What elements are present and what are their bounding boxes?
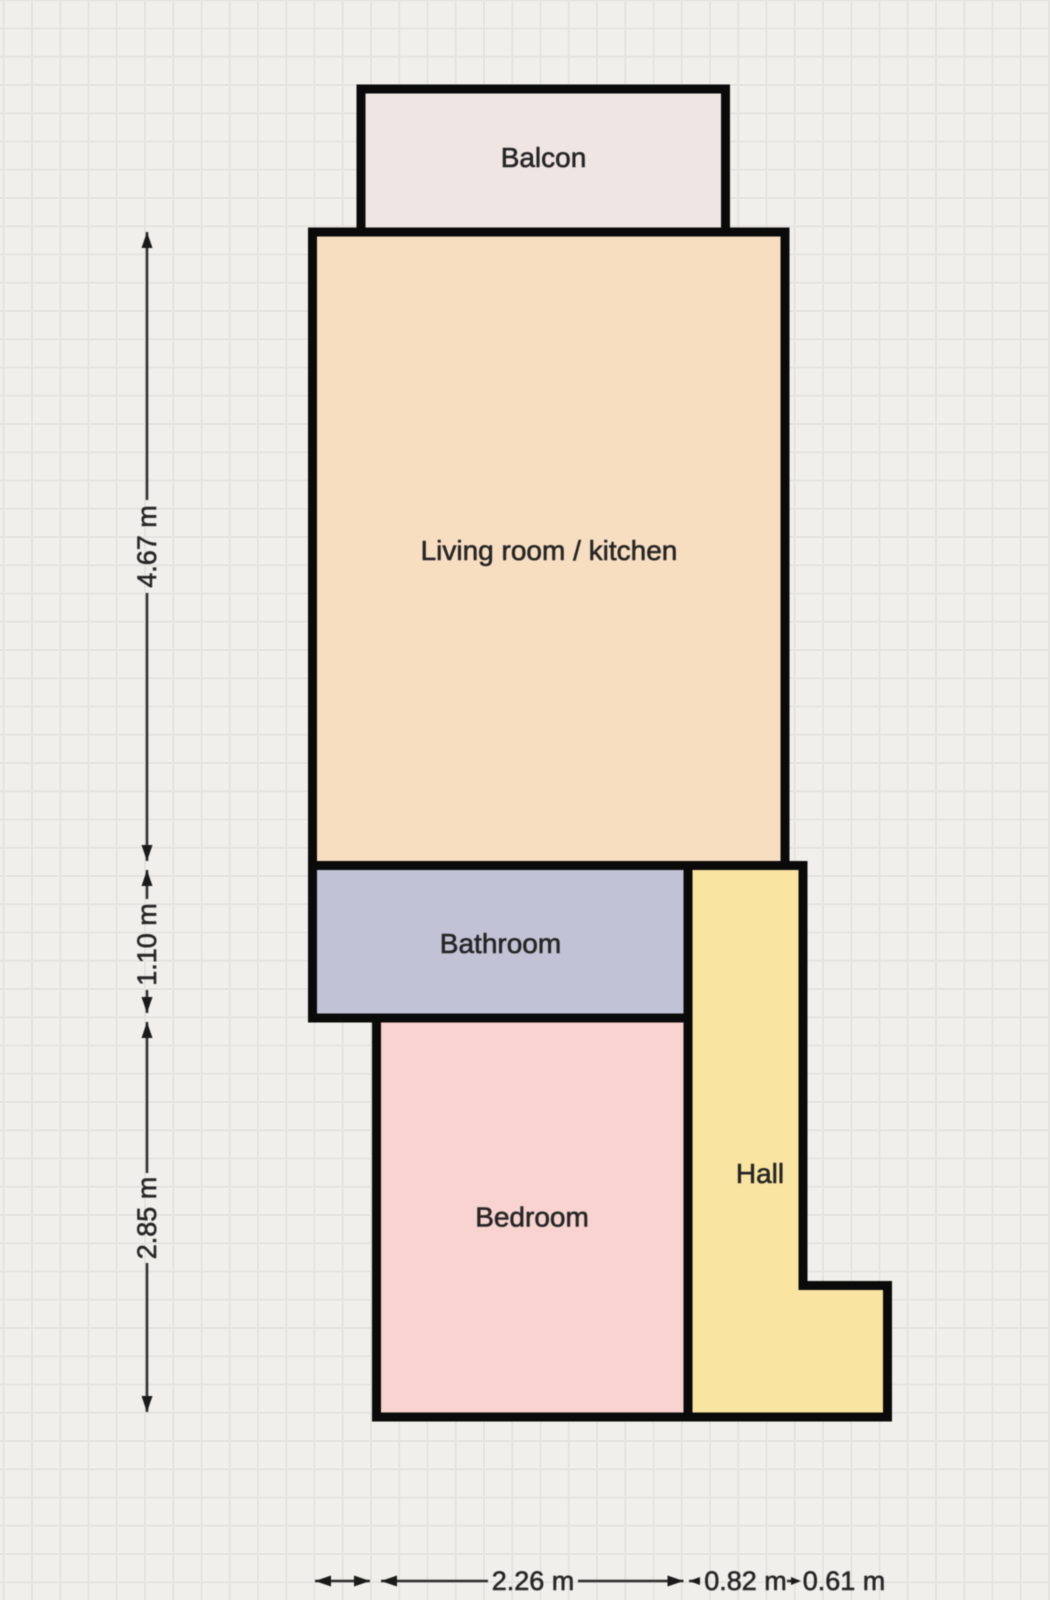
svg-text:0.61 m: 0.61 m bbox=[803, 1566, 886, 1596]
svg-text:1.10 m: 1.10 m bbox=[132, 903, 162, 986]
svg-text:4.67 m: 4.67 m bbox=[132, 505, 162, 588]
svg-text:2.85 m: 2.85 m bbox=[132, 1177, 162, 1260]
svg-text:Balcon: Balcon bbox=[501, 142, 587, 173]
svg-text:2.26 m: 2.26 m bbox=[492, 1566, 575, 1596]
svg-text:Bathroom: Bathroom bbox=[440, 928, 561, 959]
svg-text:Bedroom: Bedroom bbox=[475, 1202, 589, 1233]
svg-text:Living room / kitchen: Living room / kitchen bbox=[421, 535, 678, 566]
svg-text:Hall: Hall bbox=[736, 1158, 784, 1189]
svg-text:0.82 m: 0.82 m bbox=[704, 1566, 787, 1596]
